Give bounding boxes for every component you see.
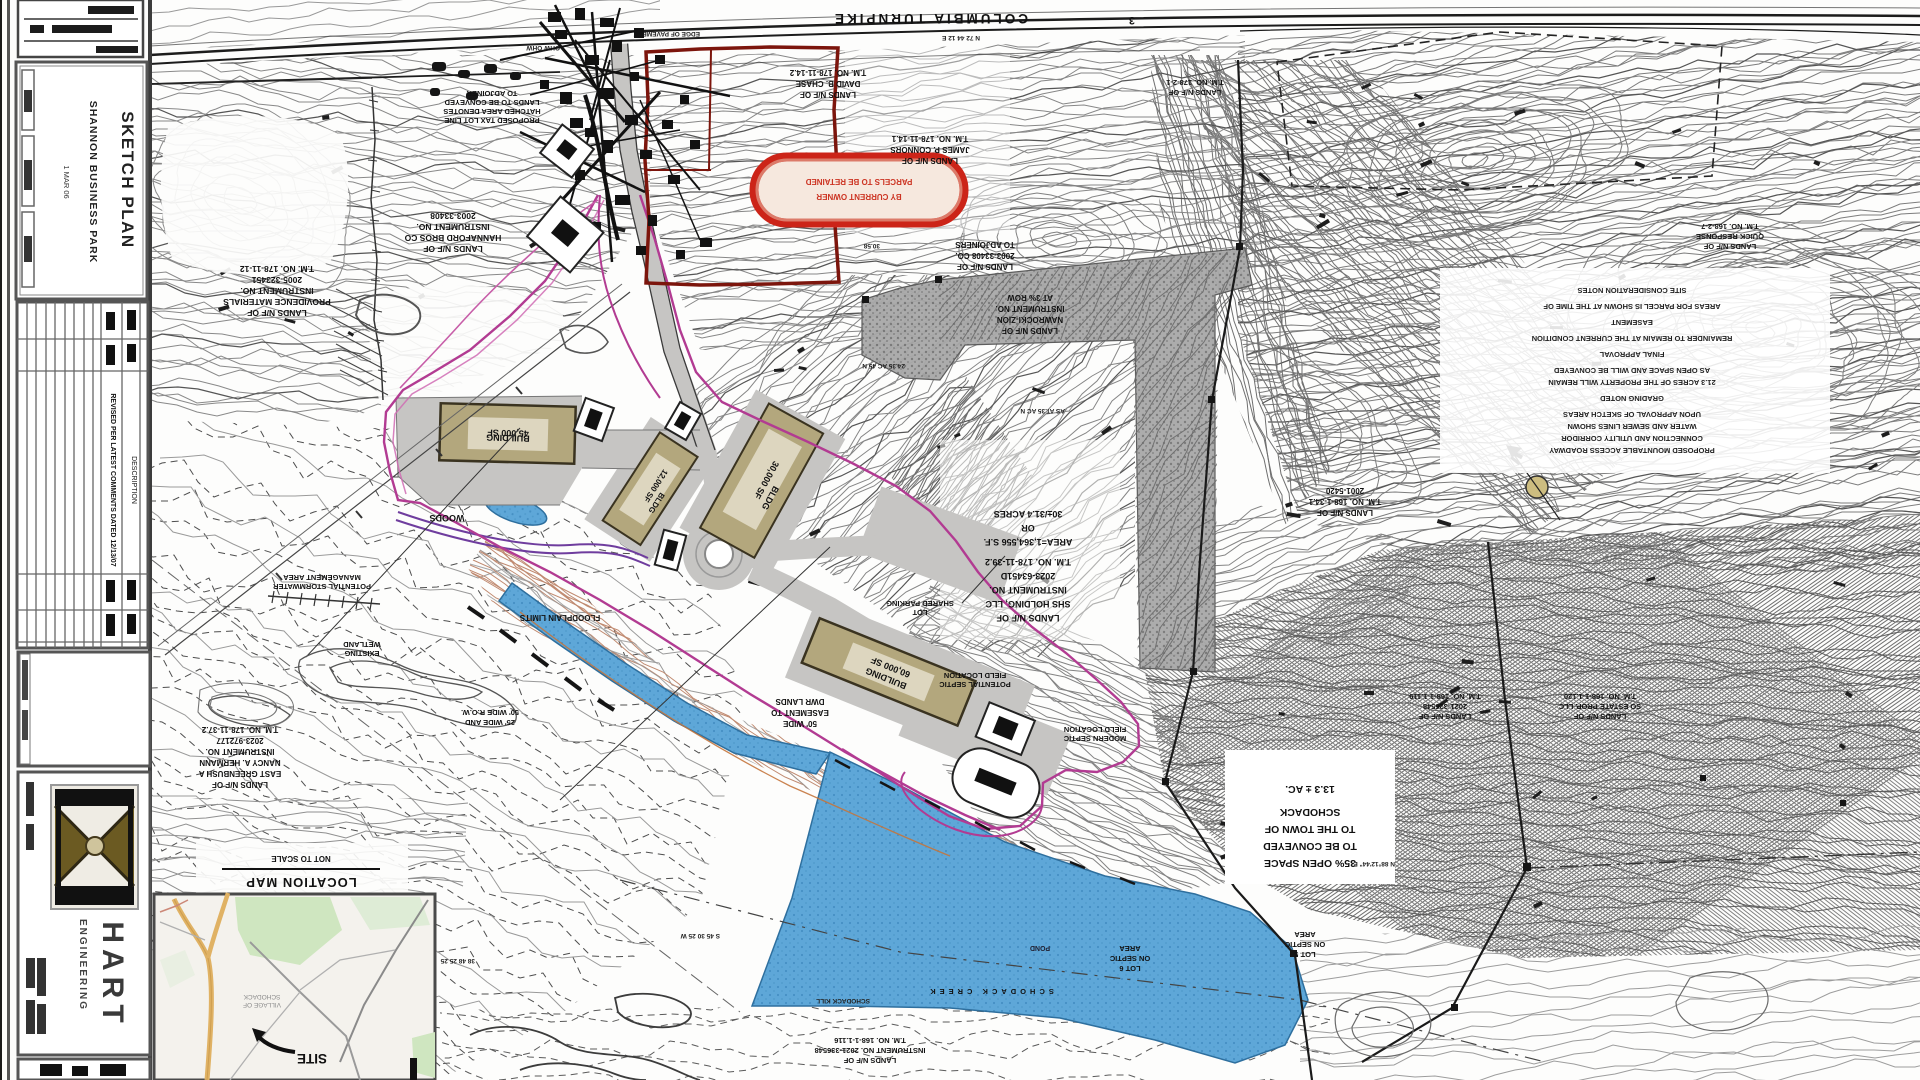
svg-text:SITE: SITE [297, 1051, 327, 1066]
svg-text:LOT 6: LOT 6 [1119, 964, 1140, 973]
svg-text:ON SEPTIC: ON SEPTIC [1109, 954, 1150, 963]
svg-text:WATER AND SEWER LINES SHOWN: WATER AND SEWER LINES SHOWN [1567, 422, 1696, 431]
svg-text:SCHODACK KILL: SCHODACK KILL [816, 997, 870, 1004]
svg-text:2021-326548: 2021-326548 [1423, 702, 1467, 711]
svg-text:INSTRUMENT NO.: INSTRUMENT NO. [989, 585, 1067, 595]
svg-text:PARCELS TO BE RETAINED: PARCELS TO BE RETAINED [805, 177, 912, 186]
svg-text:EASEMENT: EASEMENT [1611, 318, 1653, 327]
svg-text:OR: OR [1021, 523, 1035, 533]
svg-text:PROPOSED MOUNTABLE ACCESS ROAD: PROPOSED MOUNTABLE ACCESS ROADWAY [1549, 446, 1715, 455]
svg-text:2023-63451D: 2023-63451D [1000, 571, 1055, 581]
svg-text:DAVID B. CHASE: DAVID B. CHASE [795, 79, 860, 88]
svg-text:35% OPEN SPACE: 35% OPEN SPACE [1264, 857, 1356, 869]
svg-text:SHARED PARKING: SHARED PARKING [886, 599, 954, 608]
svg-text:LANDS N/F OF: LANDS N/F OF [996, 613, 1059, 623]
svg-text:POTENTIAL SEPTIC: POTENTIAL SEPTIC [939, 680, 1011, 689]
svg-text:INSTRUMENT NO. 2021-336548: INSTRUMENT NO. 2021-336548 [815, 1046, 926, 1055]
svg-text:WOODS: WOODS [430, 513, 465, 523]
svg-text:3: 3 [1129, 14, 1135, 26]
svg-text:AS OPEN SPACE AND WILL BE CONV: AS OPEN SPACE AND WILL BE CONVEYED [1553, 366, 1710, 375]
svg-text:WETLAND: WETLAND [343, 640, 381, 649]
svg-text:COLUMBIA TURNPIKE: COLUMBIA TURNPIKE [832, 11, 1028, 26]
svg-text:24.35 AC 45 N: 24.35 AC 45 N [862, 362, 905, 369]
svg-text:25' WIDE AND: 25' WIDE AND [465, 718, 515, 727]
svg-text:T.M. NO. 178-11-14.2: T.M. NO. 178-11-14.2 [789, 68, 866, 77]
svg-text:REMAINDER TO REMAIN AT THE CUR: REMAINDER TO REMAIN AT THE CURRENT CONDI… [1532, 334, 1733, 343]
svg-text:2023-972177: 2023-972177 [216, 736, 264, 745]
svg-text:EAST GREENBUSH A: EAST GREENBUSH A [199, 769, 282, 778]
svg-text:UPON APPROVAL OF SKETCH AREAS: UPON APPROVAL OF SKETCH AREAS [1563, 410, 1701, 419]
svg-text:AREA: AREA [1119, 944, 1141, 953]
svg-text:13.3 ± AC.: 13.3 ± AC. [1285, 783, 1335, 795]
svg-text:NANCY A. HERMANN: NANCY A. HERMANN [199, 758, 281, 767]
svg-text:2003-33408 CO.: 2003-33408 CO. [955, 251, 1014, 260]
svg-text:AREAS FOR PARCEL IS SHOWN AT T: AREAS FOR PARCEL IS SHOWN AT THE TIME OF [1543, 302, 1721, 311]
svg-text:SO ESTATE PROP. LLC: SO ESTATE PROP. LLC [1558, 702, 1641, 711]
svg-text:N 72 44 12 E: N 72 44 12 E [941, 34, 980, 41]
svg-text:S 45 30 25 W: S 45 30 25 W [680, 932, 720, 939]
svg-text:QUICK RESPONSE: QUICK RESPONSE [1696, 232, 1764, 241]
svg-text:T.M. NO. 168-2-7: T.M. NO. 168-2-7 [1701, 222, 1759, 231]
svg-text:GRADING NOTED: GRADING NOTED [1600, 394, 1664, 403]
svg-text:POND: POND [1030, 944, 1050, 951]
svg-text:LANDS N/F OF: LANDS N/F OF [957, 262, 1013, 271]
svg-text:MANAGEMENT AREA: MANAGEMENT AREA [283, 573, 361, 582]
svg-text:LANDS N/F OF: LANDS N/F OF [843, 1056, 896, 1065]
svg-text:FINAL APPROVAL: FINAL APPROVAL [1599, 350, 1664, 359]
svg-text:INSTRUMENT NO.: INSTRUMENT NO. [996, 304, 1065, 313]
svg-text:PROVIDENCE MATERIALS: PROVIDENCE MATERIALS [223, 297, 331, 307]
svg-text:T.M. NO. 178-11-37.2: T.M. NO. 178-11-37.2 [201, 725, 278, 734]
svg-text:1 MAR 06: 1 MAR 06 [62, 165, 71, 198]
svg-text:INSTRUMENT NO.: INSTRUMENT NO. [206, 747, 275, 756]
svg-text:EXISTING: EXISTING [344, 649, 379, 658]
svg-text:SHANNON BUSINESS PARK: SHANNON BUSINESS PARK [87, 101, 99, 264]
svg-text:VILLAGE OF: VILLAGE OF [243, 1001, 281, 1008]
svg-text:FIELD LOCATION: FIELD LOCATION [1064, 725, 1126, 734]
svg-text:LOT 5: LOT 5 [1294, 950, 1315, 959]
svg-text:TO THE TOWN OF: TO THE TOWN OF [1264, 823, 1355, 835]
svg-text:FIELD LOCATION: FIELD LOCATION [944, 671, 1006, 680]
svg-text:POTENTIAL STORMWATER: POTENTIAL STORMWATER [272, 582, 371, 591]
svg-text:JAMES P. CONNORS: JAMES P. CONNORS [890, 145, 970, 154]
svg-text:INSTRUMENT NO.: INSTRUMENT NO. [416, 222, 489, 232]
svg-text:AREA=1,364,556 S.F.: AREA=1,364,556 S.F. [984, 537, 1073, 547]
svg-text:EASEMENT TO: EASEMENT TO [771, 708, 829, 717]
svg-text:TO BE CONVEYED: TO BE CONVEYED [1263, 840, 1357, 852]
svg-text:CONNECTION AND UTILITY CORRIDO: CONNECTION AND UTILITY CORRIDOR [1561, 434, 1703, 443]
svg-text:T.M. NO. 168-1-1.119: T.M. NO. 168-1-1.119 [1409, 692, 1481, 701]
svg-text:LANDS N/F OF: LANDS N/F OF [247, 308, 307, 318]
svg-text:T.M. NO. 168-1-1.116: T.M. NO. 168-1-1.116 [834, 1036, 906, 1045]
svg-text:T.M. NO. 178-2-1: T.M. NO. 178-2-1 [1166, 78, 1224, 87]
svg-text:MODERN SEPTIC: MODERN SEPTIC [1063, 734, 1126, 743]
svg-text:LOCATION MAP: LOCATION MAP [245, 875, 356, 890]
svg-text:LOT: LOT [912, 608, 927, 617]
svg-text:TO ADJOINERS: TO ADJOINERS [955, 240, 1015, 249]
svg-text:LANDS N/F OF: LANDS N/F OF [423, 244, 483, 254]
svg-text:BUILDING: BUILDING [486, 432, 530, 443]
svg-text:HANNAFORD BROS CO: HANNAFORD BROS CO [404, 233, 501, 243]
svg-text:DESCRIPTION: DESCRIPTION [130, 456, 137, 504]
svg-text:ON SEPTIC: ON SEPTIC [1284, 940, 1325, 949]
svg-text:HART: HART [96, 921, 129, 1028]
svg-text:LANDS N/F OF: LANDS N/F OF [1418, 712, 1471, 721]
svg-text:LANDS N/F OF: LANDS N/F OF [1002, 326, 1058, 335]
svg-text:NOT TO SCALE: NOT TO SCALE [271, 854, 331, 863]
svg-text:LANDS TO BE CONVEYED: LANDS TO BE CONVEYED [444, 98, 539, 107]
svg-text:2003-33408: 2003-33408 [430, 211, 476, 221]
svg-text:DWR LANDS: DWR LANDS [775, 697, 825, 706]
svg-text:30.58: 30.58 [863, 242, 880, 249]
svg-text:30±/31.4 ACRES: 30±/31.4 ACRES [994, 509, 1063, 519]
svg-text:2001-5420: 2001-5420 [1325, 486, 1364, 495]
svg-text:TO ADJOINER: TO ADJOINER [466, 89, 517, 98]
svg-text:AS AT.35 AC N: AS AT.35 AC N [1020, 407, 1065, 414]
svg-text:N 88°12'44" E: N 88°12'44" E [1353, 860, 1395, 868]
svg-text:LANDS N/F OF: LANDS N/F OF [902, 156, 958, 165]
svg-text:LANDS N/F OF: LANDS N/F OF [1573, 712, 1626, 721]
svg-text:50' WIDE R.O.W.: 50' WIDE R.O.W. [461, 708, 519, 717]
svg-text:21.3 ACRES OF THE PROPERTY WIL: 21.3 ACRES OF THE PROPERTY WILL REMAIN [1548, 378, 1715, 387]
svg-text:T.M. NO. 178-11-12: T.M. NO. 178-11-12 [240, 264, 314, 274]
svg-text:SCHODACK CREEK: SCHODACK CREEK [926, 987, 1054, 996]
svg-text:AT 3% ROW: AT 3% ROW [1007, 293, 1053, 302]
svg-text:T.M. NO. 178-11-39.2: T.M. NO. 178-11-39.2 [985, 557, 1071, 567]
svg-text:2005-323451: 2005-323451 [252, 275, 302, 285]
svg-text:AREA: AREA [1294, 930, 1316, 939]
svg-text:BY CURRENT OWNER: BY CURRENT OWNER [816, 192, 901, 201]
svg-text:SKETCH PLAN: SKETCH PLAN [118, 111, 137, 248]
svg-text:SCHODACK: SCHODACK [243, 993, 281, 1000]
svg-text:SCHODACK: SCHODACK [1279, 806, 1340, 818]
svg-text:INSTRUMENT NO.: INSTRUMENT NO. [240, 286, 313, 296]
svg-text:50' WIDE: 50' WIDE [782, 719, 817, 728]
svg-text:SITE CONSIDERATION NOTES: SITE CONSIDERATION NOTES [1577, 286, 1686, 295]
svg-text:PROPOSED TAX LOT LINE: PROPOSED TAX LOT LINE [444, 116, 539, 125]
svg-text:T.M. NO. 168-1-1.120: T.M. NO. 168-1-1.120 [1564, 692, 1636, 701]
svg-text:FLOODPLAIN LIMITS: FLOODPLAIN LIMITS [519, 613, 600, 622]
svg-text:T.M. NO. 178-11-14.1: T.M. NO. 178-11-14.1 [891, 134, 968, 143]
svg-text:HATCHED AREA DENOTES: HATCHED AREA DENOTES [443, 107, 540, 116]
svg-text:LANDS N/F OF: LANDS N/F OF [800, 90, 856, 99]
svg-text:LANDS N/F OF: LANDS N/F OF [1168, 88, 1221, 97]
svg-text:LANDS N/F OF: LANDS N/F OF [1703, 242, 1756, 251]
svg-text:38 48 25 25: 38 48 25 25 [440, 957, 475, 964]
svg-text:NAWROCKI-ZION: NAWROCKI-ZION [997, 315, 1063, 324]
svg-text:ENGINEERING: ENGINEERING [77, 919, 88, 1011]
svg-text:LANDS N/F OF: LANDS N/F OF [212, 780, 268, 789]
svg-text:LANDS N/F OF: LANDS N/F OF [1317, 508, 1373, 517]
svg-text:REVISED PER LATEST COMMENTS DA: REVISED PER LATEST COMMENTS DATED 12/13/… [109, 393, 116, 566]
svg-text:T.M. NO. 168-1-34.1: T.M. NO. 168-1-34.1 [1308, 497, 1381, 506]
svg-text:SHS HOLDING, LLC: SHS HOLDING, LLC [985, 599, 1070, 609]
